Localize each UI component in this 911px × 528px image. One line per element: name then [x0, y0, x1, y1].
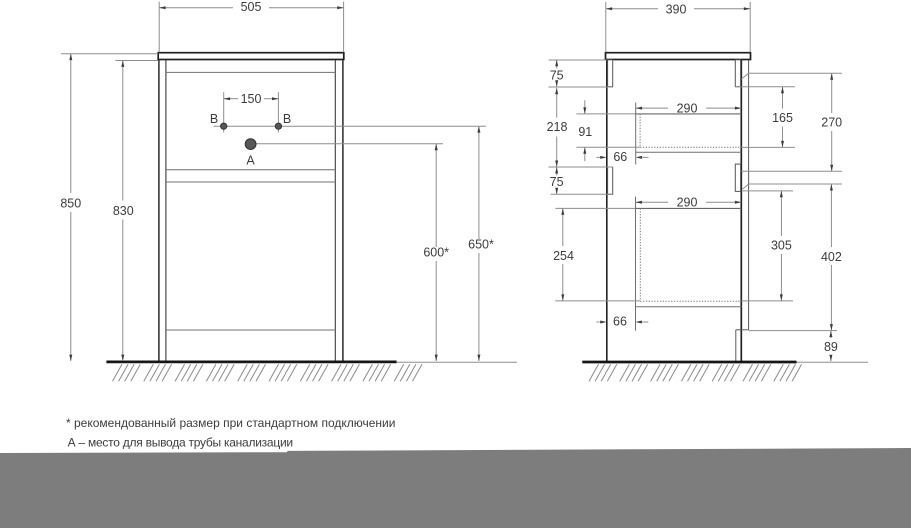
svg-text:830: 830 — [113, 204, 134, 218]
svg-text:650*: 650* — [468, 238, 494, 252]
svg-text:150: 150 — [241, 92, 262, 106]
svg-text:89: 89 — [824, 340, 838, 354]
svg-text:91: 91 — [578, 125, 592, 139]
svg-text:305: 305 — [771, 239, 792, 253]
svg-text:600*: 600* — [423, 246, 449, 260]
svg-text:290: 290 — [677, 196, 698, 210]
svg-text:218: 218 — [547, 120, 568, 134]
svg-text:* рекомендованный размер при с: * рекомендованный размер при стандартном… — [66, 416, 395, 430]
svg-text:402: 402 — [821, 250, 842, 264]
svg-text:850: 850 — [60, 196, 81, 210]
svg-text:75: 75 — [550, 175, 564, 189]
svg-text:66: 66 — [613, 315, 627, 329]
svg-text:B: B — [283, 112, 291, 126]
svg-text:290: 290 — [677, 102, 698, 116]
svg-text:254: 254 — [553, 249, 574, 263]
svg-text:75: 75 — [550, 68, 564, 82]
svg-text:390: 390 — [666, 2, 687, 16]
svg-text:A: A — [246, 153, 255, 167]
svg-text:270: 270 — [821, 116, 842, 130]
svg-text:66: 66 — [613, 150, 627, 164]
svg-text:А – место для вывода трубы кан: А – место для вывода трубы канализации — [68, 436, 293, 450]
svg-text:B: B — [210, 112, 218, 126]
svg-text:165: 165 — [772, 111, 793, 125]
svg-text:505: 505 — [241, 0, 262, 14]
